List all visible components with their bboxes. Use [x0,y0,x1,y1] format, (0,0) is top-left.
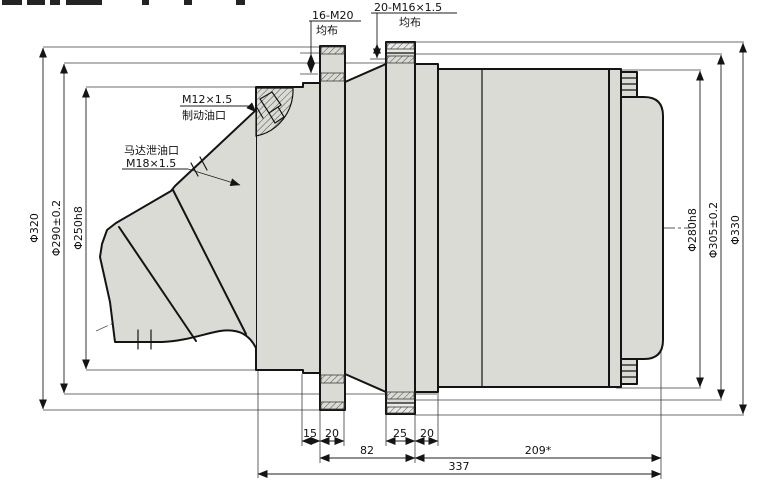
callout-20-m16: 20-M16×1.5 [374,1,442,14]
cropped-title-fragment [27,0,45,5]
dim-15: 15 [303,427,317,440]
main-housing-280h8 [438,69,609,387]
dim-25: 25 [393,427,407,440]
cropped-title-fragment [2,0,22,5]
cropped-title-fragment [66,0,102,5]
callout-16-m20: 16-M20 [312,9,353,22]
plug-bottom [621,359,637,384]
spigot-290 [415,64,438,392]
dim-phi-250: Φ250h8 [72,206,85,250]
dim-20a: 20 [325,427,339,440]
brake-port-callout: M12×1.5 制动油口 [180,93,256,122]
motor-section-drawing: Φ320 Φ290±0.2 Φ250h8 Φ280h8 Φ305±0.2 Φ33… [0,0,768,487]
callout-m12: M12×1.5 [182,93,232,106]
flange-320 [320,46,345,410]
callout-m12-sub: 制动油口 [182,108,226,122]
plug-top [621,72,637,97]
flange-330 [386,42,415,414]
cropped-title-fragment [50,0,60,5]
dim-337: 337 [449,460,470,473]
length-dimensions: 15 20 25 20 82 209* 337 [258,427,661,474]
callout-20-m16-sub: 均布 [399,16,421,29]
cropped-title-fragment [184,0,192,5]
dim-20b: 20 [420,427,434,440]
callout-m18: M18×1.5 [126,157,176,170]
dim-phi-280: Φ280h8 [686,208,699,252]
dim-phi-305: Φ305±0.2 [707,202,720,258]
dim-phi-320: Φ320 [28,213,41,243]
dim-phi-330: Φ330 [729,215,742,245]
callout-16-m20-sub: 均布 [316,24,338,37]
callout-drain: 马达泄油口 [124,143,179,157]
engineering-drawing-canvas: Φ320 Φ290±0.2 Φ250h8 Φ280h8 Φ305±0.2 Φ33… [0,0,768,487]
end-ring [609,69,621,387]
housing-taper [345,64,386,392]
dim-209: 209* [525,444,552,457]
cropped-title-fragment [142,0,149,5]
dim-phi-290: Φ290±0.2 [50,200,63,256]
cropped-title-fragment [236,0,245,5]
dim-82: 82 [360,444,374,457]
end-cap [621,97,663,359]
